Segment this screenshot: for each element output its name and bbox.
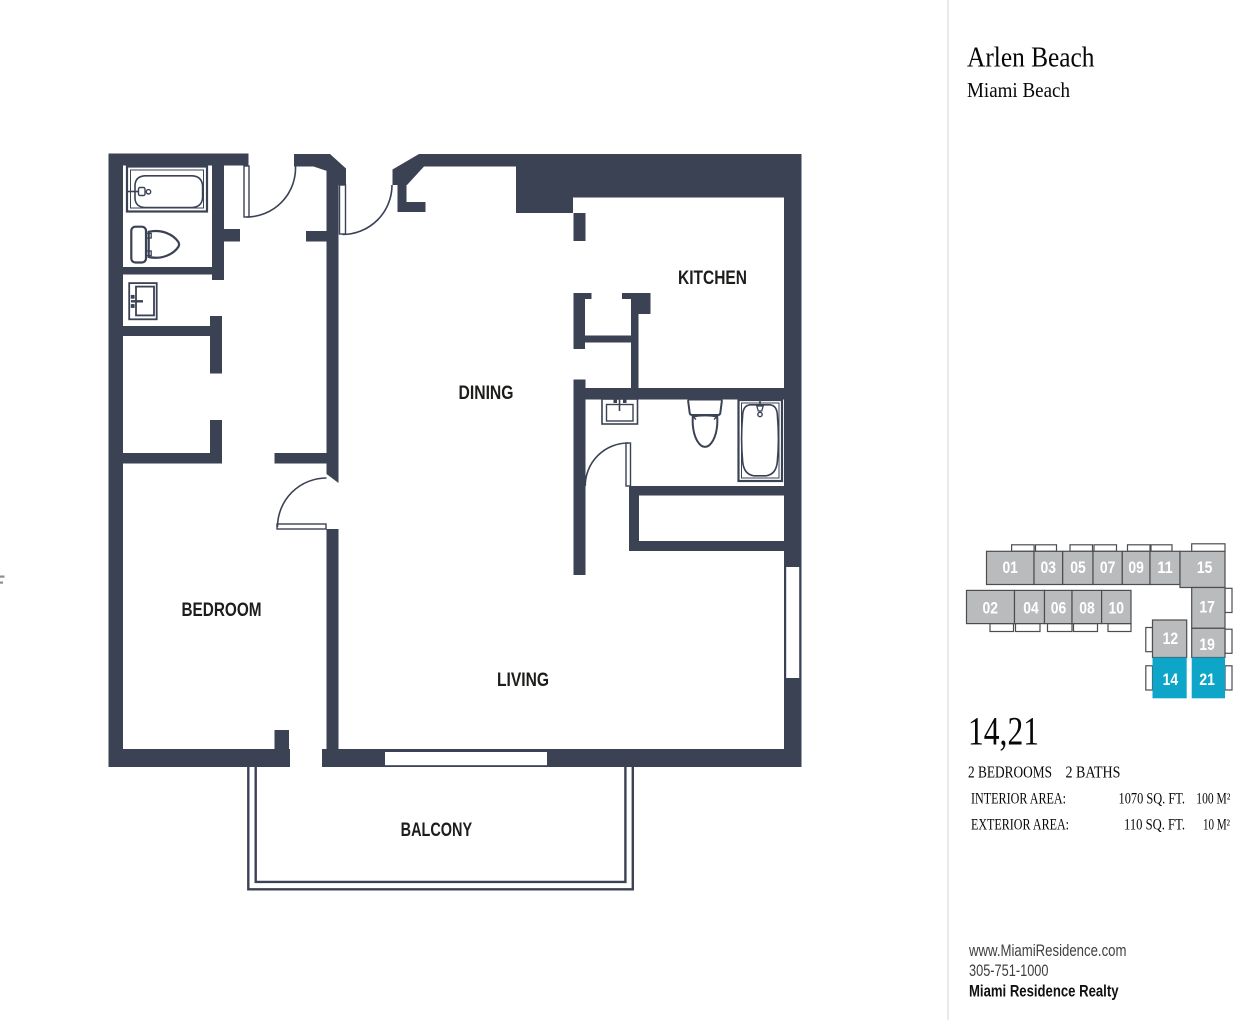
svg-text:110 SQ. FT.: 110 SQ. FT. bbox=[1124, 817, 1185, 834]
svg-text:06: 06 bbox=[1051, 600, 1067, 618]
svg-text:10: 10 bbox=[1109, 600, 1125, 618]
svg-text:LIVING: LIVING bbox=[497, 669, 549, 691]
svg-text:Miami Residence Realty: Miami Residence Realty bbox=[969, 982, 1119, 1001]
svg-text:2 BEDROOMS: 2 BEDROOMS bbox=[968, 763, 1052, 782]
svg-text:KITCHEN: KITCHEN bbox=[678, 267, 747, 289]
svg-text:100 M²: 100 M² bbox=[1196, 791, 1230, 808]
svg-text:14: 14 bbox=[1163, 671, 1179, 689]
svg-text:17: 17 bbox=[1199, 599, 1215, 617]
svg-text:1070 SQ. FT.: 1070 SQ. FT. bbox=[1119, 791, 1186, 808]
svg-text:19: 19 bbox=[1199, 636, 1215, 654]
svg-text:12: 12 bbox=[1163, 630, 1179, 648]
svg-text:BALCONY: BALCONY bbox=[401, 819, 473, 841]
svg-text:14,21: 14,21 bbox=[968, 709, 1039, 754]
svg-text:Miami Beach: Miami Beach bbox=[967, 78, 1070, 102]
svg-text:INTERIOR AREA:: INTERIOR AREA: bbox=[971, 791, 1066, 808]
svg-text:BEDROOM: BEDROOM bbox=[182, 599, 262, 621]
svg-text:11: 11 bbox=[1157, 559, 1173, 577]
svg-text:04: 04 bbox=[1023, 600, 1039, 618]
svg-text:www.MiamiResidence.com: www.MiamiResidence.com bbox=[968, 941, 1126, 960]
svg-text:07: 07 bbox=[1100, 559, 1116, 577]
svg-text:05: 05 bbox=[1070, 559, 1086, 577]
svg-text:305-751-1000: 305-751-1000 bbox=[969, 961, 1049, 980]
svg-text:DINING: DINING bbox=[459, 382, 514, 404]
svg-text:15: 15 bbox=[1197, 559, 1213, 577]
svg-text:21: 21 bbox=[1199, 671, 1215, 689]
svg-text:10 M²: 10 M² bbox=[1203, 817, 1230, 834]
svg-text:03: 03 bbox=[1041, 559, 1057, 577]
svg-text:Arlen Beach: Arlen Beach bbox=[967, 43, 1095, 74]
svg-text:09: 09 bbox=[1128, 559, 1144, 577]
svg-text:01: 01 bbox=[1002, 559, 1018, 577]
svg-text:08: 08 bbox=[1079, 600, 1095, 618]
svg-text:EXTERIOR AREA:: EXTERIOR AREA: bbox=[971, 817, 1069, 834]
svg-text:2 BATHS: 2 BATHS bbox=[1066, 763, 1121, 782]
svg-text:02: 02 bbox=[983, 600, 999, 618]
